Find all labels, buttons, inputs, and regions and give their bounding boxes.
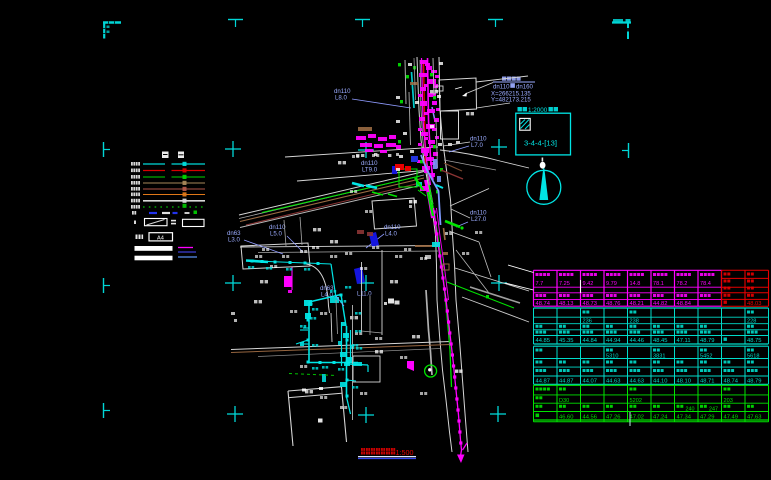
- svg-text:44.87: 44.87: [536, 379, 551, 385]
- svg-text:48.74: 48.74: [536, 301, 551, 307]
- svg-text:47.63: 47.63: [747, 415, 762, 421]
- svg-text:44.87: 44.87: [559, 379, 574, 385]
- svg-text:44.63: 44.63: [630, 379, 645, 385]
- svg-text:48.45: 48.45: [653, 338, 668, 344]
- svg-text:L27.0: L27.0: [471, 216, 487, 223]
- svg-text:7.7: 7.7: [536, 281, 544, 287]
- svg-text:47.34: 47.34: [677, 415, 692, 421]
- svg-text:A4: A4: [157, 236, 164, 242]
- svg-text:48.71: 48.71: [700, 379, 715, 385]
- svg-text:228: 228: [747, 319, 756, 325]
- svg-text:3-4-4-[13]: 3-4-4-[13]: [524, 139, 557, 148]
- svg-text:46.60: 46.60: [559, 415, 574, 421]
- svg-text:14.8: 14.8: [630, 281, 641, 287]
- svg-text:D30: D30: [559, 398, 569, 404]
- svg-text:L8.0: L8.0: [335, 95, 347, 102]
- svg-text:L11.0: L11.0: [357, 292, 372, 298]
- svg-text:9.42: 9.42: [583, 281, 594, 287]
- svg-text:44.84: 44.84: [583, 338, 598, 344]
- svg-text:LT9.0: LT9.0: [362, 167, 378, 174]
- svg-text:48.79: 48.79: [747, 379, 762, 385]
- svg-text:48.76: 48.76: [606, 301, 621, 307]
- svg-text:78.4: 78.4: [700, 281, 711, 287]
- svg-text:44.56: 44.56: [583, 415, 598, 421]
- svg-text:1:500: 1:500: [396, 448, 414, 457]
- svg-text:5618: 5618: [747, 353, 759, 359]
- svg-text:48.75: 48.75: [747, 338, 762, 344]
- svg-text:44.07: 44.07: [583, 379, 598, 385]
- svg-text:48.73: 48.73: [583, 301, 598, 307]
- svg-text:L7.0: L7.0: [471, 142, 483, 149]
- svg-text:47.26: 47.26: [606, 415, 621, 421]
- svg-text:78.1: 78.1: [653, 281, 664, 287]
- svg-text:48.21: 48.21: [630, 301, 645, 307]
- svg-text:5202: 5202: [630, 398, 642, 404]
- svg-text:9.79: 9.79: [606, 281, 617, 287]
- svg-text:47.29: 47.29: [700, 415, 715, 421]
- svg-text:78.2: 78.2: [677, 281, 688, 287]
- svg-text:5452: 5452: [700, 353, 712, 359]
- svg-text:47.02: 47.02: [630, 415, 645, 421]
- svg-text:48.13: 48.13: [559, 301, 574, 307]
- svg-text:48.84: 48.84: [677, 301, 692, 307]
- svg-text:L4.0: L4.0: [385, 231, 397, 238]
- svg-text:dn160: dn160: [516, 83, 534, 90]
- svg-text:236: 236: [583, 319, 592, 325]
- svg-text:44.85: 44.85: [536, 338, 551, 344]
- svg-text:47.49: 47.49: [724, 415, 739, 421]
- svg-text:44.63: 44.63: [606, 379, 621, 385]
- svg-text:238: 238: [630, 319, 639, 325]
- svg-text:L5.0: L5.0: [270, 231, 282, 238]
- svg-text:48.03: 48.03: [747, 301, 762, 307]
- svg-text:3831: 3831: [653, 353, 665, 359]
- svg-text:247: 247: [709, 406, 718, 412]
- svg-text:48.74: 48.74: [724, 379, 739, 385]
- svg-text:47.24: 47.24: [653, 415, 668, 421]
- svg-text:203: 203: [724, 398, 733, 404]
- svg-text:44.94: 44.94: [606, 338, 621, 344]
- svg-text:47.11: 47.11: [677, 338, 691, 344]
- svg-text:48.79: 48.79: [700, 338, 715, 344]
- svg-text:dn110: dn110: [493, 83, 510, 90]
- svg-text:44.46: 44.46: [630, 338, 645, 344]
- svg-text:44.10: 44.10: [653, 379, 668, 385]
- svg-text:45.35: 45.35: [559, 338, 574, 344]
- svg-text:5310: 5310: [606, 353, 618, 359]
- svg-text:44.82: 44.82: [653, 301, 668, 307]
- svg-text:Y=482173.215: Y=482173.215: [491, 97, 531, 104]
- svg-text:L3.0: L3.0: [228, 237, 240, 244]
- svg-text:7.25: 7.25: [559, 281, 570, 287]
- svg-text:48.10: 48.10: [677, 379, 692, 385]
- svg-text:240: 240: [686, 406, 695, 412]
